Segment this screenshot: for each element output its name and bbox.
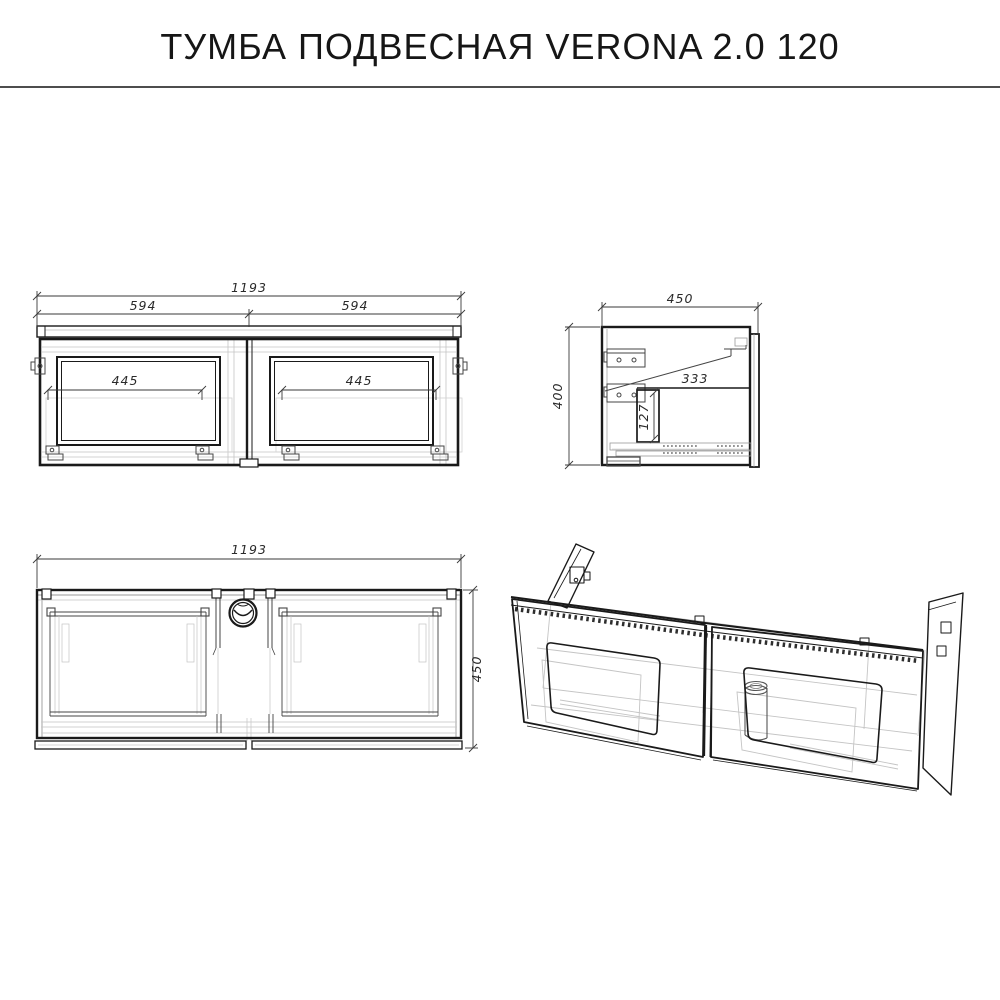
screw-holes bbox=[663, 446, 745, 453]
dim-side-inner-depth: 333 bbox=[682, 371, 709, 386]
dim-front-left-opening: 445 bbox=[112, 373, 139, 388]
iso-interior-lines bbox=[531, 602, 925, 772]
side-view: 450 400 333 127 bbox=[550, 291, 762, 469]
drawer-slide-rails bbox=[607, 443, 751, 466]
front-doors-top-strip bbox=[35, 741, 462, 749]
drawer-box-right bbox=[279, 608, 441, 716]
dim-side-drawer-height: 127 bbox=[636, 404, 651, 431]
dim-side-depth: 450 bbox=[667, 291, 694, 306]
dim-front-total-width: 1193 bbox=[231, 280, 267, 295]
front-view: 1193 594 594 445 445 bbox=[31, 280, 467, 467]
drain-hole bbox=[230, 600, 257, 627]
cabinet-body-front bbox=[40, 339, 458, 467]
dim-side-height: 400 bbox=[550, 383, 565, 410]
countertop bbox=[37, 326, 461, 337]
dim-front-right-section: 594 bbox=[342, 298, 369, 313]
drawer-box-left bbox=[47, 608, 209, 716]
hinge-icon bbox=[31, 358, 467, 374]
wall-bracket-icon bbox=[604, 349, 645, 402]
dim-front-right-opening: 445 bbox=[346, 373, 373, 388]
iso-structure bbox=[511, 544, 963, 795]
center-partitions bbox=[213, 598, 275, 733]
dim-top-total-width: 1193 bbox=[231, 542, 267, 557]
dim-top-depth: 450 bbox=[469, 656, 484, 683]
top-view: 1193 450 bbox=[33, 542, 484, 752]
isometric-view bbox=[511, 544, 963, 795]
dim-front-left-section: 594 bbox=[130, 298, 157, 313]
door-right-panel bbox=[270, 357, 433, 445]
front-dimensions bbox=[33, 291, 465, 400]
technical-drawing: 1193 594 594 445 445 bbox=[0, 0, 1000, 1000]
door-left-panel bbox=[57, 357, 220, 445]
